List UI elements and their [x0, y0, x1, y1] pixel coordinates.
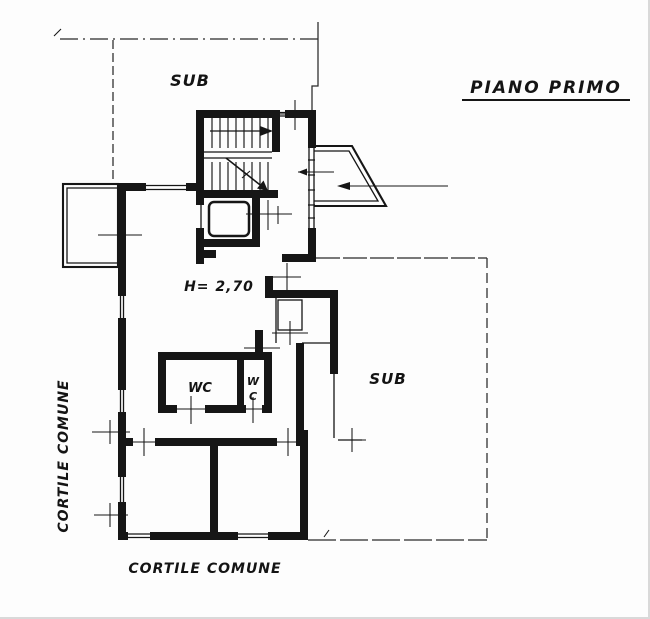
wall-wc-right — [264, 352, 272, 412]
axis-markers — [92, 100, 366, 527]
balcony-outline — [63, 184, 118, 267]
labels: SUB SUB H= 2,70 WC W C CORTILE COMUNE CO… — [56, 71, 407, 577]
wall-elevator-left-a — [196, 198, 204, 205]
wall-right-mid — [296, 343, 304, 446]
title-block: PIANO PRIMO — [462, 78, 630, 100]
light-shaft-lines — [334, 374, 362, 440]
wall-stair-top-left — [196, 110, 272, 118]
ramp-arrow-long-head — [337, 182, 350, 190]
label-sub-top: SUB — [170, 71, 210, 90]
bottom-window-1 — [128, 534, 150, 538]
label-wc-right-top: W — [247, 375, 260, 388]
external-ramp — [298, 146, 448, 206]
label-cortile-bottom: CORTILE COMUNE — [128, 561, 281, 577]
stair-landing-lines — [204, 152, 272, 158]
wall-right-lower — [300, 430, 308, 540]
stair-diagonal-arrow — [226, 158, 264, 188]
wall-rooms-divider — [210, 446, 218, 532]
wall-wc-top — [158, 352, 272, 360]
axis-room1-door — [126, 428, 162, 456]
wall-terrace-right — [330, 290, 338, 374]
elevator-cab — [209, 202, 249, 236]
wall-ext-right-upper — [308, 113, 316, 148]
balcony-left — [63, 184, 118, 267]
wall-bottom-b — [150, 532, 238, 540]
scan-mark-2 — [324, 530, 329, 537]
wall-left-1 — [118, 183, 126, 296]
small-room-lines — [276, 298, 330, 343]
left-window-1 — [121, 296, 124, 318]
floor-plan-drawing: PIANO PRIMO — [0, 0, 650, 619]
floor-plan-scan: PIANO PRIMO — [0, 0, 650, 619]
left-window-2 — [121, 390, 124, 412]
axis-entry-door — [273, 263, 301, 291]
bottom-window-2 — [238, 534, 268, 538]
wall-stair-bottom — [196, 190, 278, 198]
wall-top-left-b — [186, 183, 204, 191]
boundary-right-line — [312, 22, 318, 110]
wall-left-2 — [118, 318, 126, 390]
stairwell — [204, 118, 273, 191]
ramp-arrow-short-head — [298, 169, 307, 176]
balcony-door-glazing — [146, 186, 186, 190]
wall-bottom-a — [118, 532, 128, 540]
wall-wc-left — [158, 352, 166, 412]
stair-diagonal-arrowhead — [257, 181, 268, 192]
axis-shaft-wall — [338, 428, 366, 452]
balcony-inner-line — [67, 188, 118, 263]
label-height-note: H= 2,70 — [184, 279, 254, 295]
label-cortile-left: CORTILE COMUNE — [56, 379, 72, 532]
wall-corridor-b — [155, 438, 277, 446]
wall-elevator-bottom — [196, 239, 260, 247]
right-window-band — [308, 148, 315, 228]
plan-title: PIANO PRIMO — [470, 78, 622, 98]
scan-mark — [54, 29, 61, 36]
wall-entry-bottom — [282, 254, 316, 262]
wall-wc-divider — [237, 360, 244, 412]
label-wc-right-bottom: C — [249, 390, 257, 403]
wall-smallroom-top — [265, 290, 338, 298]
small-room — [276, 298, 362, 440]
label-sub-right: SUB — [369, 370, 406, 388]
wall-elevator-stub — [204, 250, 216, 258]
label-wc-left: WC — [188, 381, 212, 396]
stair-direction-arrowhead — [260, 126, 273, 136]
left-window-3 — [121, 477, 124, 502]
stair-treads-upper — [212, 118, 268, 148]
